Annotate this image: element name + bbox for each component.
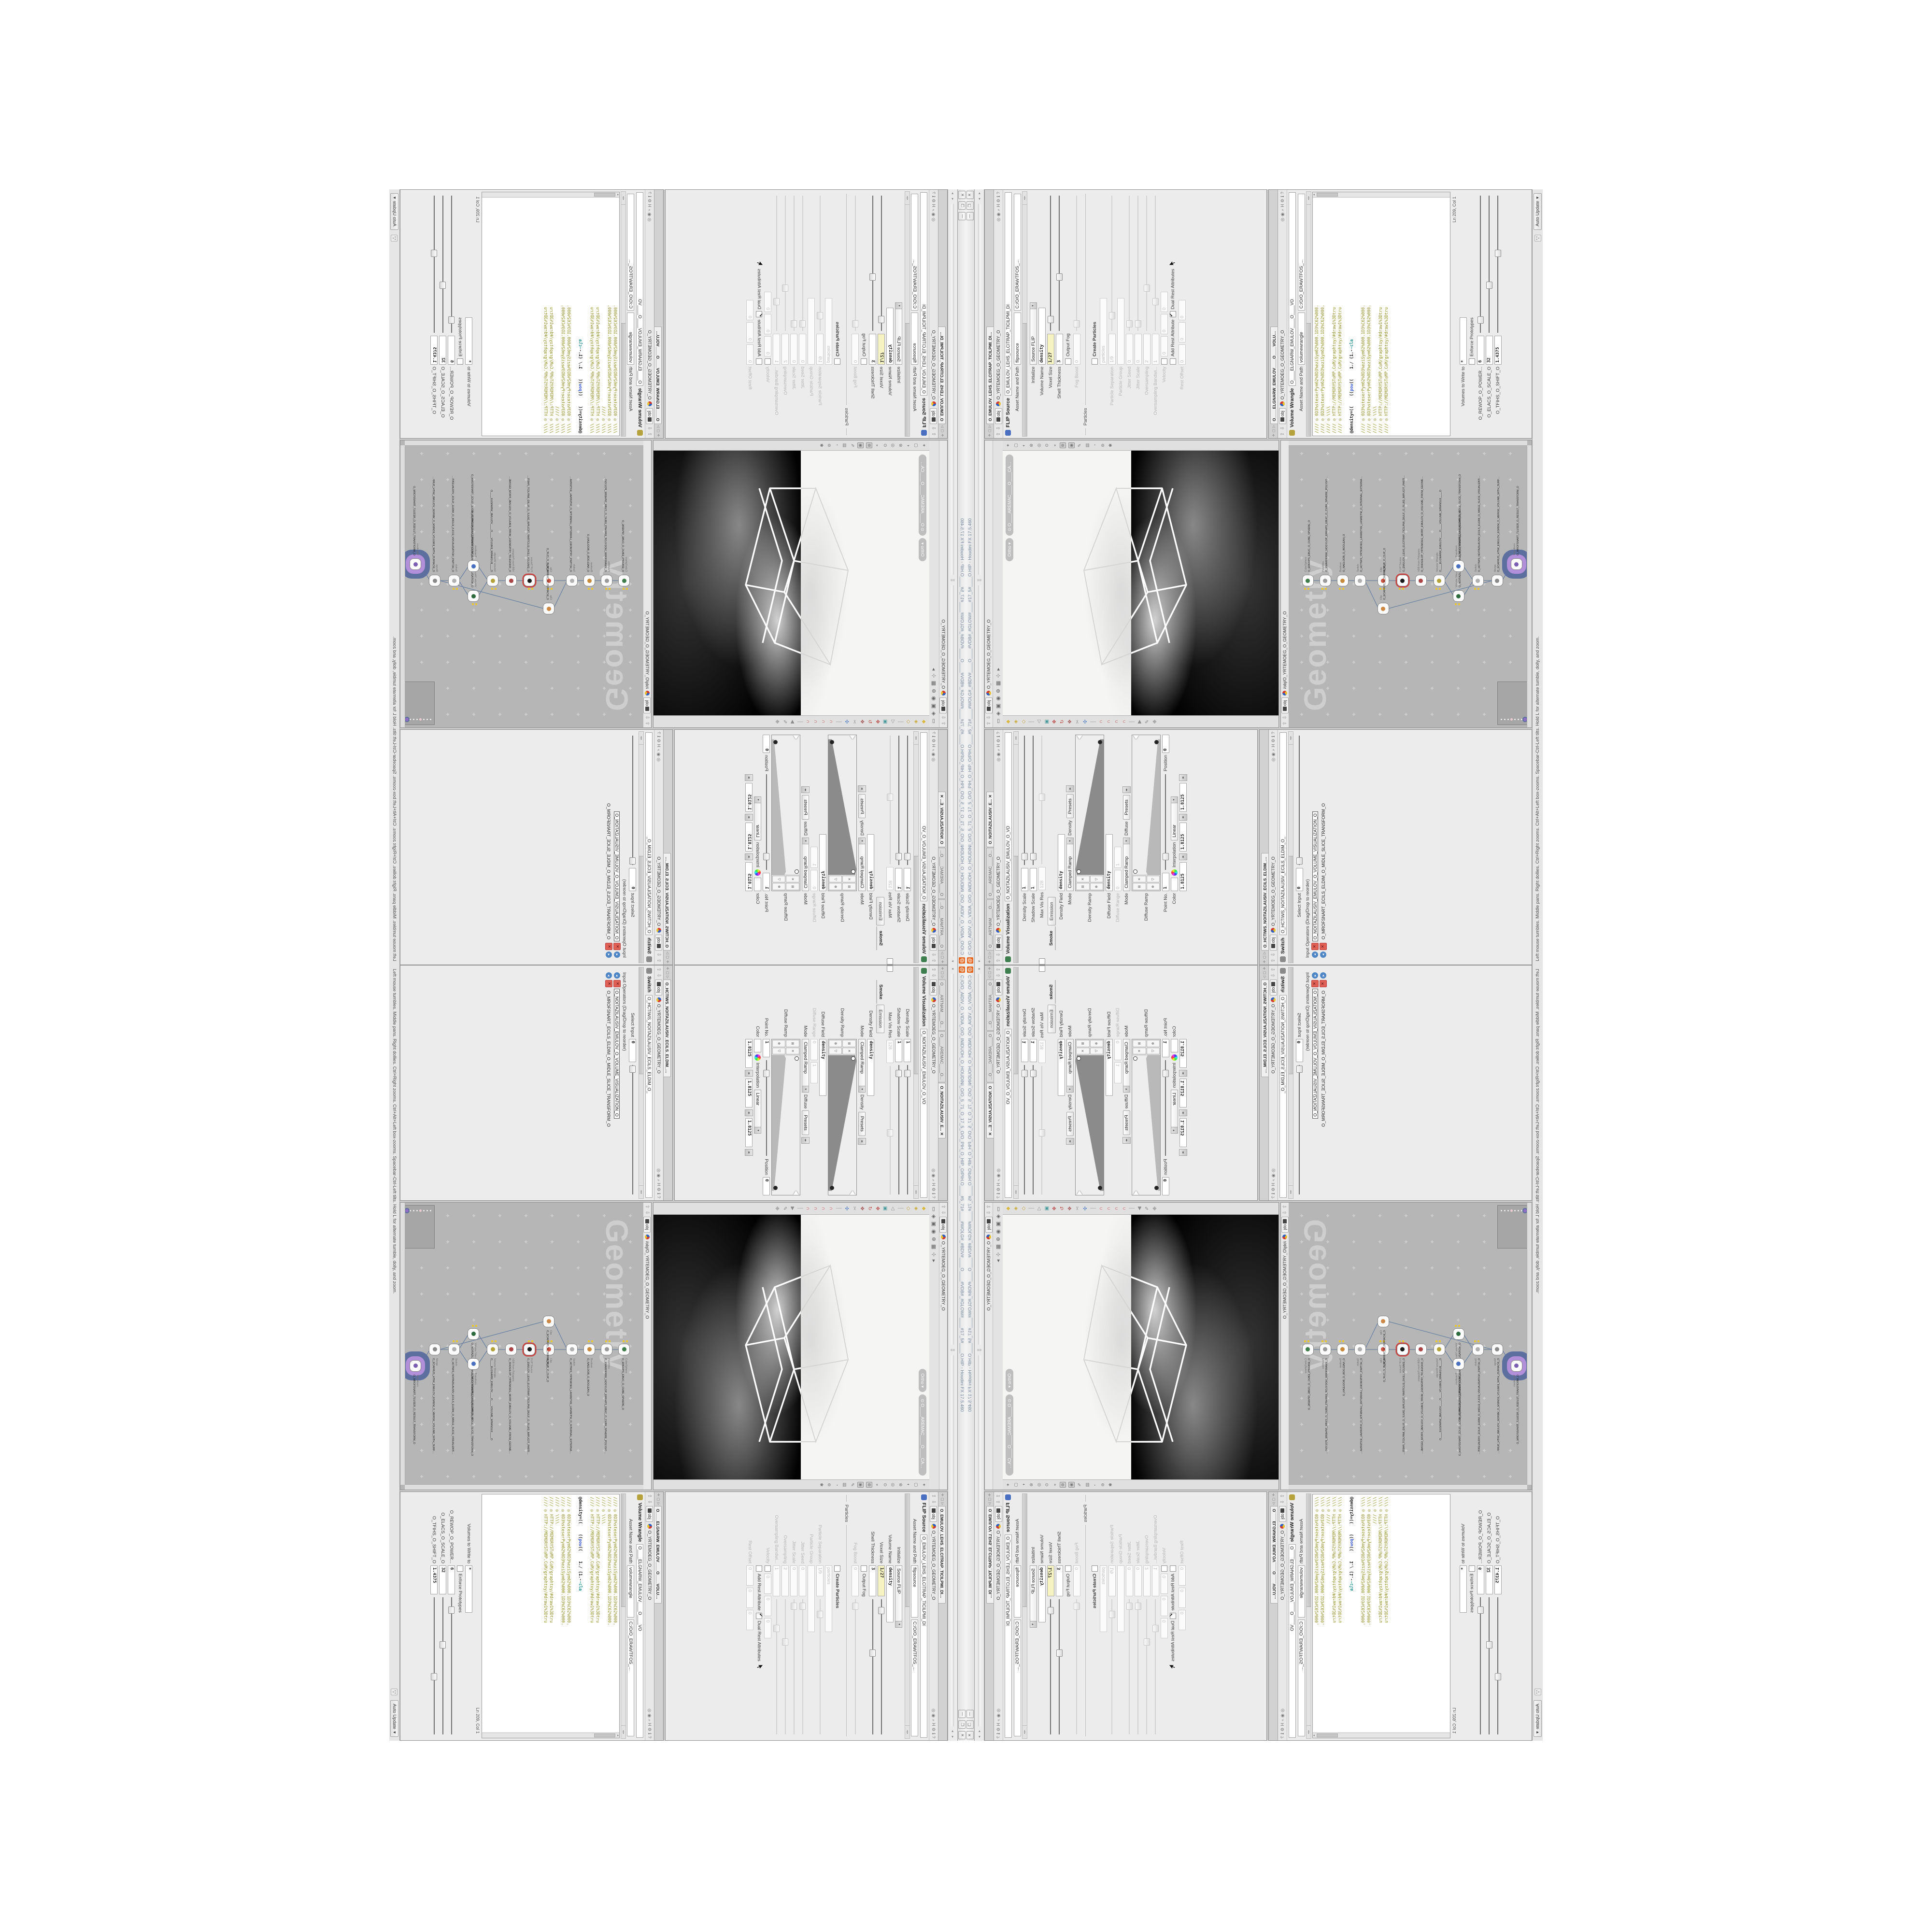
nav-up-icon[interactable]: ⇧: [941, 1205, 946, 1208]
node-name[interactable]: O_ECAFRUS_HTIW_EMULOV_EGREM_O_MERGE_VOLU…: [1497, 1358, 1501, 1455]
spinner-icon[interactable]: ◂▸: [1179, 814, 1187, 821]
nav-down-icon[interactable]: ⇩: [941, 1210, 946, 1214]
param-field[interactable]: density: [867, 1039, 875, 1096]
param-field[interactable]: 6: [448, 336, 455, 365]
ramp-button-icon[interactable]: ⊞: [1133, 883, 1146, 891]
network-vscrollbar[interactable]: [405, 1484, 643, 1490]
ramp-point[interactable]: [795, 869, 799, 874]
network-node[interactable]: [1378, 1316, 1389, 1327]
scroll-arrows[interactable]: ◂ ▸: [1014, 732, 1018, 745]
param-field[interactable]: 0: [747, 344, 754, 365]
network-node[interactable]: [1453, 560, 1464, 572]
help-browser-icon[interactable]: H: [931, 1183, 936, 1186]
display-option-icon[interactable]: ✱: [1108, 443, 1113, 447]
info-icon[interactable]: ℹ: [1271, 736, 1276, 737]
vex-code-editor[interactable]: //// ◎ 0D3%steserPym62%0D3%eziSym62%000.…: [1312, 192, 1450, 436]
pane-tab[interactable]: O____ARTNAM____O...: [938, 899, 946, 951]
viewport-snap-tool-icon[interactable]: ◆: [921, 720, 926, 724]
gear-icon[interactable]: ⚙: [647, 1727, 653, 1731]
node-flag-icon[interactable]: [605, 1340, 607, 1342]
scroll-arrows[interactable]: ◂ ▸: [639, 732, 643, 745]
scroll-arrows[interactable]: ◂ ▸: [1014, 1185, 1018, 1198]
dropdown[interactable]: Source FLIP▼: [895, 302, 903, 365]
pane-tab[interactable]: O____ARTNAM____O...: [938, 980, 946, 1031]
ramp-button-icon[interactable]: ⊕: [1147, 1040, 1160, 1047]
ramp-gradient[interactable]: [1132, 735, 1160, 875]
network-node[interactable]: [601, 1344, 612, 1355]
viewport-snap-tool-icon[interactable]: ◁: [890, 1207, 895, 1210]
pane-corner-icon[interactable]: ▷: [988, 976, 992, 979]
viewport-snap-tool-icon[interactable]: ↻: [1060, 1207, 1065, 1210]
viewport-snap-tool-icon[interactable]: ✂: [852, 720, 857, 724]
param-field[interactable]: 0: [1161, 1618, 1168, 1638]
param-slider[interactable]: [1030, 735, 1037, 866]
param-field[interactable]: density: [1038, 308, 1046, 365]
checkbox[interactable]: [756, 358, 762, 365]
nav-up-icon[interactable]: ⇧: [1271, 959, 1276, 963]
nav-up-icon[interactable]: ⇧: [986, 722, 992, 725]
asset-name-field[interactable]: flipsource: [1014, 313, 1021, 365]
viewport-snap-tool-icon[interactable]: │: [1029, 1207, 1034, 1210]
display-option-icon[interactable]: ◒: [1052, 444, 1057, 446]
dropdown[interactable]: Clamped Ramp▼: [1123, 1039, 1130, 1093]
pane-tab[interactable]: O____AREMAC____O...: [986, 1031, 994, 1083]
shelf-scroll-left-icon[interactable]: ◂: [951, 198, 955, 200]
viewport-snap-tool-icon[interactable]: ✥: [875, 1207, 880, 1210]
node-flag-icon[interactable]: [528, 1340, 530, 1342]
info-icon[interactable]: ℹ: [931, 736, 937, 737]
param-field[interactable]: 32: [440, 336, 447, 365]
breadcrumb-root-chip[interactable]: obj: [995, 935, 1002, 951]
pane-hscrollbar[interactable]: ◂ ▸: [913, 967, 919, 1199]
scroll-handle[interactable]: [1307, 323, 1311, 436]
param-field[interactable]: 0: [1179, 1588, 1186, 1608]
presets-button[interactable]: Presets: [858, 794, 866, 818]
param-slider[interactable]: [431, 1596, 438, 1735]
target-icon[interactable]: ◎: [1271, 1168, 1276, 1172]
folder-tab-emission[interactable]: Emission: [1048, 1005, 1056, 1033]
nav-up-icon[interactable]: ⇧: [996, 967, 1001, 971]
param-slider[interactable]: [1162, 773, 1169, 871]
param-slider[interactable]: [431, 195, 438, 334]
node-flag-icon[interactable]: [1402, 1340, 1404, 1342]
param-field[interactable]: 0: [765, 1574, 772, 1594]
ramp-point[interactable]: [830, 1186, 834, 1190]
ramp-point[interactable]: [1098, 740, 1102, 744]
param-field[interactable]: 128: [1038, 1040, 1046, 1063]
viewport-snap-tool-icon[interactable]: ▶: [790, 720, 795, 724]
spinner-icon[interactable]: ◂▸: [858, 1138, 866, 1145]
ramp-point[interactable]: [795, 1056, 799, 1061]
search-icon[interactable]: ⌕: [996, 749, 1001, 751]
target-icon[interactable]: ◎: [996, 218, 1001, 222]
viewport-snap-tool-icon[interactable]: ∩: [1098, 720, 1104, 723]
help-browser-icon[interactable]: H: [1280, 1723, 1285, 1726]
help-browser-icon[interactable]: H: [1280, 204, 1285, 208]
display-option-icon[interactable]: ◉: [1068, 442, 1075, 448]
node-flag-icon[interactable]: [1304, 1340, 1306, 1342]
viewport-tool-icon[interactable]: ▦: [931, 1244, 938, 1249]
breadcrumb-root-chip[interactable]: obj: [655, 935, 663, 951]
param-slider[interactable]: [1152, 1598, 1159, 1735]
param-field[interactable]: 1.4375: [431, 1565, 438, 1594]
spinner-icon[interactable]: ◂▸: [1066, 1138, 1074, 1145]
target-icon[interactable]: ◎: [931, 758, 937, 762]
question-icon[interactable]: ?: [996, 732, 1001, 734]
param-slider[interactable]: [852, 1598, 859, 1735]
minimize-button[interactable]: —: [966, 1710, 974, 1718]
viewport-snap-tool-icon[interactable]: ✣: [1083, 720, 1088, 724]
nav-down-icon[interactable]: ⇩: [1280, 426, 1285, 430]
gear-icon[interactable]: ⚙: [931, 739, 937, 742]
node-flag-icon[interactable]: [1339, 1340, 1341, 1342]
nav-up-icon[interactable]: ⇧: [1271, 967, 1276, 971]
help-browser-icon[interactable]: H: [1271, 744, 1276, 748]
question-icon[interactable]: ?: [1280, 1736, 1285, 1738]
folder-tab-smoke[interactable]: Smoke: [1048, 980, 1056, 1004]
ramp-buttons[interactable]: ⊞✕⊕▽: [1132, 1039, 1160, 1055]
node-flag-icon[interactable]: [1321, 588, 1323, 590]
network-minimap[interactable]: [1497, 1205, 1529, 1249]
pane-corner-icon[interactable]: ▢: [666, 971, 670, 975]
param-field[interactable]: 32: [1486, 1565, 1493, 1594]
network-node[interactable]: [487, 575, 498, 586]
ramp-buttons[interactable]: ⊞✕⊕▽: [1076, 875, 1104, 891]
param-field[interactable]: *: [1460, 1565, 1467, 1613]
viewport-snap-tool-icon[interactable]: ◆: [1006, 1207, 1011, 1210]
pane-tab[interactable]: O_HCTIWS_NOITAZILAUSIV_ECILS_ELDIM_O_MID…: [1261, 853, 1268, 951]
network-node[interactable]: [1320, 575, 1331, 586]
view-mode-pill[interactable]: Ortho ▾: [919, 1369, 926, 1392]
viewport-snap-tool-icon[interactable]: │: [1091, 720, 1096, 723]
viewport-snap-tool-icon[interactable]: ✥: [1067, 1207, 1073, 1210]
network-hscrollbar[interactable]: [400, 445, 405, 727]
node-flag-icon[interactable]: [475, 603, 477, 605]
update-mode-dropdown[interactable]: Auto Update▾: [1534, 1700, 1542, 1737]
param-slider[interactable]: [773, 195, 780, 332]
node-flag-icon[interactable]: [1399, 1340, 1401, 1342]
node-name[interactable]: O_MROFSNART_TLUSER_O_RESULT_TRANSFORM_O: [412, 486, 416, 555]
checkbox[interactable]: [861, 1565, 867, 1572]
viewport-snap-tool-icon[interactable]: │: [1129, 720, 1135, 723]
dropdown[interactable]: Clamped Ramp▼: [858, 838, 866, 891]
display-option-icon[interactable]: ✱: [819, 1483, 824, 1487]
pane-corner-icon[interactable]: ▢: [988, 429, 992, 433]
param-slider[interactable]: [878, 195, 885, 332]
pane-hscrollbar[interactable]: ◂ ▸: [639, 967, 644, 1199]
node-name[interactable]: O_HCTIWS_YRTEMOEG_LANRETXE_LANRETNI_O_IN…: [1360, 1358, 1364, 1455]
folder-tab-smoke[interactable]: Smoke: [876, 926, 884, 950]
node-name[interactable]: O_EMARFERIW_NOGYLOP_EREHPS_EBUC_O_CUBE_S…: [604, 1358, 607, 1455]
pane-corner-icon[interactable]: ▢: [1272, 429, 1276, 433]
param-field[interactable]: *: [1460, 317, 1467, 365]
scroll-handle[interactable]: [639, 856, 643, 963]
node-flag-icon[interactable]: [1339, 588, 1341, 590]
node-name[interactable]: O_EMULOV_LEHS_ELCITRAP_TICILPMI_DIULF_O_…: [526, 1358, 530, 1455]
node-flag-icon[interactable]: [1474, 588, 1476, 590]
network-minimap[interactable]: [403, 1205, 435, 1249]
param-field[interactable]: 0: [1162, 735, 1169, 753]
param-field[interactable]: 0: [629, 1039, 637, 1062]
network-node[interactable]: [1397, 575, 1408, 586]
node-flag-icon[interactable]: [1455, 603, 1457, 605]
ramp-button-icon[interactable]: ▽: [829, 1048, 842, 1055]
network-node[interactable]: [543, 1316, 554, 1327]
checkbox[interactable]: [835, 358, 841, 365]
node-flag-icon[interactable]: [1325, 1340, 1327, 1342]
flag-icon[interactable]: ◉: [656, 1174, 662, 1178]
param-field[interactable]: 0: [1073, 1565, 1080, 1596]
operator-row[interactable]: ◂✕O_NOITAZILAUSIV_EMULOV_O_VOLUME_VISUAL…: [1311, 731, 1319, 958]
node-name[interactable]: O____ELGNARW_EMULOV____O____VOLUME_WRANG…: [1439, 1358, 1443, 1440]
node-flag-icon[interactable]: [491, 1340, 493, 1342]
node-name[interactable]: O_EMULOV_LEHS_ELCITRAP_TICILPMI_DIULF_O_…: [526, 475, 530, 572]
viewport-tool-icon[interactable]: ◈: [931, 711, 938, 715]
display-option-icon[interactable]: ▤: [1085, 443, 1090, 448]
param-field[interactable]: 1: [763, 1039, 770, 1057]
param-field[interactable]: density: [887, 1565, 894, 1622]
color-swatch[interactable]: [754, 1039, 762, 1052]
viewport-tool-icon[interactable]: ⊕: [995, 689, 1001, 693]
network-path[interactable]: /obj/O_YRTEMOEG_O_GEOMETRY_O: [645, 611, 650, 689]
node-flag-icon[interactable]: [495, 588, 497, 590]
reorder-icon[interactable]: ◂: [606, 952, 612, 958]
checkbox[interactable]: [1065, 358, 1071, 365]
param-field[interactable]: 128: [1038, 867, 1046, 890]
pane-tab[interactable]: O____ELGNARW_EMULOV____O____VOLUME_WRANG…: [1270, 327, 1278, 424]
pane-corner-icon[interactable]: ▢: [941, 955, 945, 960]
ramp-button-icon[interactable]: ⊞: [843, 883, 856, 891]
pane-tab[interactable]: O_EMULOV_LEHS_ELCITRAP_TICILPMI_DIULF_O_…: [986, 327, 994, 424]
param-field[interactable]: 32: [440, 1565, 447, 1594]
presets-button[interactable]: Presets: [1066, 794, 1074, 818]
network-node[interactable]: [566, 575, 578, 586]
ramp-button-icon[interactable]: ⊞: [786, 1040, 800, 1047]
viewport-snap-tool-icon[interactable]: ✥: [859, 720, 865, 724]
question-icon[interactable]: ?: [931, 732, 936, 734]
viewport-snap-tool-icon[interactable]: ✂: [1075, 720, 1080, 724]
shelf-scroll-right-icon[interactable]: ▸: [951, 192, 955, 194]
ramp-point[interactable]: [1133, 1056, 1137, 1061]
network-node[interactable]: [1511, 558, 1522, 570]
network-node[interactable]: [1378, 603, 1389, 614]
checkbox[interactable]: [457, 358, 464, 365]
shelf-collapse-icon[interactable]: ▾: [977, 960, 981, 962]
network-node[interactable]: [410, 1360, 421, 1372]
network-node[interactable]: [1453, 1328, 1464, 1340]
breadcrumb-node[interactable]: O_YRTEMOEG_O_GEOMETRY_O: [931, 856, 936, 926]
nav-down-icon[interactable]: ⇩: [645, 715, 650, 719]
breadcrumb-root-chip[interactable]: obj: [985, 1217, 993, 1233]
ramp-point[interactable]: [851, 869, 855, 874]
operator-row[interactable]: ◂✕O_NOITAZILAUSIV_EMULOV_O_VOLUME_VISUAL…: [613, 972, 621, 1199]
folder-tab-emission[interactable]: Emission: [876, 1005, 884, 1033]
flag-icon[interactable]: ◉: [1271, 1174, 1276, 1178]
asset-name-field[interactable]: flipsource: [911, 1565, 919, 1618]
info-icon[interactable]: ℹ: [931, 1193, 937, 1194]
param-field[interactable]: 1.8125: [745, 783, 753, 812]
display-option-icon[interactable]: ✱: [819, 443, 824, 447]
flag-icon[interactable]: ◉: [647, 1714, 653, 1718]
param-slider[interactable]: [1056, 1598, 1063, 1735]
search-icon[interactable]: ⌕: [996, 1719, 1001, 1721]
search-icon[interactable]: ⌕: [931, 209, 937, 211]
nav-up-icon[interactable]: ⇧: [931, 1494, 937, 1498]
ramp-button-icon[interactable]: ▽: [772, 876, 786, 883]
param-field[interactable]: 2: [782, 1565, 789, 1596]
pane-corner-icon[interactable]: ✛: [988, 960, 992, 964]
checkbox[interactable]: [457, 1565, 464, 1572]
param-slider[interactable]: [1030, 1064, 1037, 1195]
question-icon[interactable]: ?: [1271, 1196, 1276, 1198]
restore-button[interactable]: ❐: [966, 1720, 974, 1729]
nav-up-icon[interactable]: ⇧: [656, 967, 662, 971]
help-browser-icon[interactable]: H: [996, 1183, 1001, 1186]
ramp-button-icon[interactable]: ⊕: [829, 883, 842, 891]
pane-corner-icon[interactable]: ✛: [988, 1493, 992, 1497]
breadcrumb-node[interactable]: O_YRTEMOEG_O_GEOMETRY_O: [996, 1531, 1001, 1600]
pane-corner-icon[interactable]: ▢: [941, 429, 945, 433]
pane-tab[interactable]: O_HCTIWS_NOITAZILAUSIV_ECILS_ELDIM_O_MID…: [1261, 980, 1268, 1077]
remove-operator-icon[interactable]: ✕: [1311, 943, 1319, 950]
nav-up-icon[interactable]: ⇧: [647, 1494, 653, 1498]
ramp-button-icon[interactable]: ⊞: [843, 1040, 856, 1047]
pane-corner-icon[interactable]: ▷: [941, 976, 945, 979]
viewport-snap-tool-icon[interactable]: ▣: [1044, 719, 1050, 724]
dropdown[interactable]: Clamped Ramp▼: [1066, 1039, 1074, 1093]
param-field[interactable]: density: [1058, 1039, 1065, 1096]
display-option-icon[interactable]: ⊕: [1060, 442, 1066, 448]
param-field[interactable]: 0: [1179, 1565, 1186, 1586]
presets-button[interactable]: Presets: [1123, 795, 1130, 819]
ramp-button-icon[interactable]: ▽: [1090, 876, 1104, 883]
help-browser-icon[interactable]: H: [656, 744, 661, 748]
node-flag-icon[interactable]: [1435, 1340, 1437, 1342]
viewport-render[interactable]: Ortho ▾ ⊙ O____AREMAC____O____CAMERA____…: [653, 1215, 929, 1479]
viewport-snap-tool-icon[interactable]: ▶: [1137, 720, 1142, 724]
info-icon[interactable]: ℹ: [1271, 1193, 1276, 1194]
ramp-button-icon[interactable]: ▽: [772, 1048, 786, 1055]
asset-name-field[interactable]: volumewrangle: [627, 313, 635, 365]
param-field[interactable]: 1.8125: [1179, 862, 1187, 891]
node-name[interactable]: O_ECAFRUS_O_SURFACE_O: [546, 1330, 549, 1367]
viewport-snap-tool-icon[interactable]: ∩: [821, 1207, 826, 1210]
param-field[interactable]: 1/9: [1108, 1565, 1116, 1596]
viewport-snap-tool-icon[interactable]: ∩: [1106, 1207, 1111, 1210]
pane-tab[interactable]: O_NOITAZILAUSIV_E... ✕: [986, 792, 994, 847]
pan-hand-icon[interactable]: [391, 235, 398, 241]
param-field[interactable]: 0: [1296, 868, 1303, 891]
breadcrumb-root-chip[interactable]: obj: [995, 408, 1002, 424]
param-field[interactable]: 1: [1162, 1039, 1169, 1057]
pane-corner-icon[interactable]: ✛: [657, 433, 661, 437]
pane-corner-icon[interactable]: ▢: [988, 955, 992, 960]
dropdown[interactable]: Clamped Ramp▼: [1123, 838, 1130, 891]
param-slider[interactable]: [869, 1598, 876, 1735]
pane-corner-icon[interactable]: ✛: [1272, 1493, 1276, 1497]
search-icon[interactable]: ⌕: [931, 1719, 937, 1721]
param-field[interactable]: 0: [1114, 870, 1122, 891]
param-slider[interactable]: [763, 1059, 770, 1157]
checkbox[interactable]: [1039, 958, 1045, 965]
breadcrumb-node[interactable]: O_YRTEMOEG_O_GEOMETRY_O: [941, 619, 946, 689]
viewport-snap-tool-icon[interactable]: ❉: [1152, 720, 1158, 724]
display-option-icon[interactable]: ▢: [1013, 1483, 1019, 1487]
info-icon[interactable]: ℹ: [647, 196, 653, 197]
gear-icon[interactable]: ⚙: [996, 1187, 1001, 1191]
param-field[interactable]: 1.8125: [745, 1039, 753, 1068]
display-option-icon[interactable]: ◐: [1021, 1483, 1026, 1486]
scroll-arrows[interactable]: ◂ ▸: [1289, 1185, 1293, 1198]
checkbox[interactable]: [887, 958, 894, 965]
node-flag-icon[interactable]: [1342, 588, 1344, 590]
pane-corner-icon[interactable]: ✛: [941, 433, 945, 437]
gear-icon[interactable]: ⚙: [1280, 1727, 1285, 1731]
camera-pill[interactable]: ⊙ O____AREMAC____O____CAMERA____O: [919, 455, 926, 536]
breadcrumb-node[interactable]: O_YRTEMOEG_O_GEOMETRY_O: [656, 1004, 661, 1074]
code-vscrollbar[interactable]: [1313, 192, 1450, 198]
nav-up-icon[interactable]: ⇧: [941, 722, 946, 725]
flag-icon[interactable]: ◉: [1271, 753, 1276, 756]
pane-corner-icon[interactable]: ✛: [657, 1493, 661, 1497]
display-option-icon[interactable]: ◐: [906, 1483, 911, 1486]
viewport-snap-tool-icon[interactable]: ∩: [813, 720, 818, 723]
param-field[interactable]: density: [887, 308, 894, 365]
remove-operator-icon[interactable]: ✕: [605, 943, 612, 950]
node-name[interactable]: O_EMULOV_LEHS_ELCITRAP_TICILPMI_DIULF_O_…: [1403, 475, 1406, 572]
spinner-icon[interactable]: ◂▸: [745, 774, 753, 781]
color-picker-icon[interactable]: [1171, 1054, 1178, 1061]
breadcrumb-node[interactable]: O_YRTEMOEG_O_GEOMETRY_O: [647, 1531, 652, 1600]
scroll-handle[interactable]: [1014, 967, 1018, 1074]
viewport-snap-tool-icon[interactable]: ✥: [1052, 1207, 1057, 1210]
breadcrumb-root-chip[interactable]: obj: [1281, 697, 1289, 713]
ramp-point[interactable]: [773, 1186, 778, 1190]
display-option-icon[interactable]: ⊙: [882, 1483, 888, 1487]
node-name[interactable]: O_MROFSNART_TLUSER_O_RESULT_TRANSFORM_O: [1517, 1375, 1520, 1444]
breadcrumb-root-chip[interactable]: obj: [1270, 935, 1277, 951]
breadcrumb-node[interactable]: O_YRTEMOEG_O_GEOMETRY_O: [1271, 856, 1276, 926]
network-node[interactable]: [1453, 590, 1464, 602]
param-slider[interactable]: [1477, 1596, 1484, 1735]
network-minimap[interactable]: [1497, 682, 1529, 725]
viewport-snap-tool-icon[interactable]: ✥: [1052, 720, 1057, 724]
gear-icon[interactable]: ⚙: [996, 199, 1001, 202]
network-node[interactable]: [429, 1344, 440, 1355]
spinner-icon[interactable]: ◂▸: [801, 786, 810, 793]
pane-hscrollbar[interactable]: ◂ ▸: [905, 1493, 910, 1739]
param-slider[interactable]: [1126, 1598, 1133, 1735]
pane-hscrollbar[interactable]: ◂ ▸: [621, 1493, 626, 1739]
checkbox[interactable]: [1170, 311, 1176, 317]
network-hscrollbar[interactable]: [400, 1203, 405, 1485]
param-field[interactable]: 1/9: [817, 1565, 824, 1596]
display-option-icon[interactable]: ✦: [1006, 443, 1011, 447]
viewport-tool-icon[interactable]: ▸: [995, 668, 1001, 671]
param-field[interactable]: 1: [811, 1062, 818, 1083]
pane-hscrollbar[interactable]: ◂ ▸: [913, 731, 919, 963]
network-vscrollbar[interactable]: [1289, 440, 1527, 446]
param-slider[interactable]: [1126, 195, 1133, 332]
info-icon[interactable]: ℹ: [996, 1193, 1001, 1194]
node-flag-icon[interactable]: [1477, 1340, 1479, 1342]
question-icon[interactable]: ?: [931, 1736, 936, 1738]
param-field[interactable]: 1: [1152, 1565, 1159, 1596]
help-browser-icon[interactable]: H: [647, 204, 652, 208]
shelf-scroll-right-icon[interactable]: ▸: [977, 1736, 981, 1738]
display-option-icon[interactable]: ◎: [890, 1483, 895, 1487]
pane-tab[interactable]: O_NOITAZILAUSIV_E... ✕: [986, 1083, 994, 1138]
